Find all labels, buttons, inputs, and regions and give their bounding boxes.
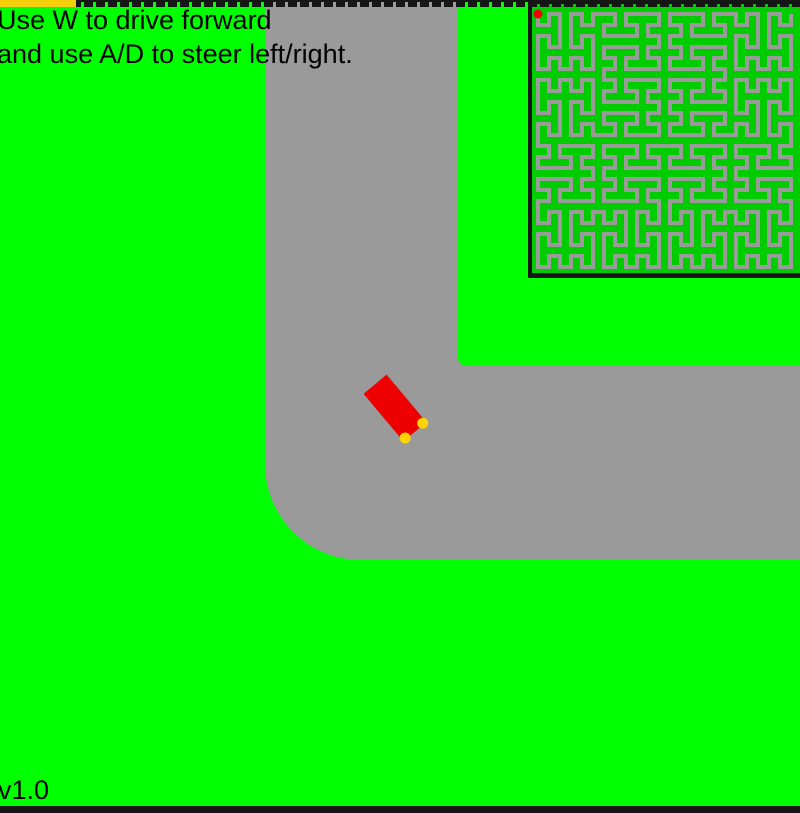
instructions: Use W to drive forward and use A/D to st… [0,3,353,71]
version-label: v1.0 [0,773,49,807]
game-viewport[interactable]: Use W to drive forward and use A/D to st… [0,0,800,813]
player-position-dot [534,10,543,19]
instructions-line1: Use W to drive forward [0,3,353,37]
instructions-line2: and use A/D to steer left/right. [0,37,353,71]
minimap-track [532,4,800,273]
world-border-bottom [0,806,800,813]
minimap [528,0,800,278]
